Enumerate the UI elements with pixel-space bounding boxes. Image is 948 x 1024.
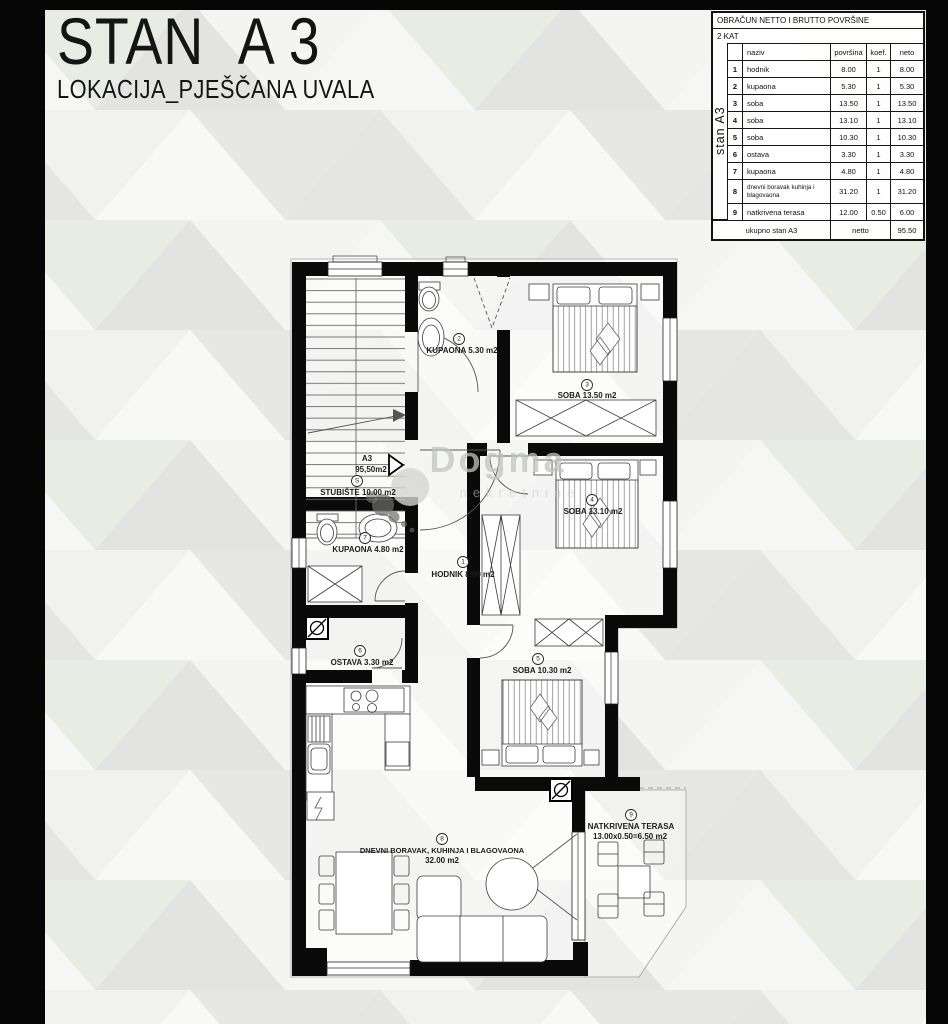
row-num: 2 xyxy=(727,77,742,94)
watermark-text-2: nekretnine xyxy=(460,485,581,500)
row-num: 4 xyxy=(727,111,742,128)
row-povrsina: 8.00 xyxy=(830,60,866,77)
svg-text:1: 1 xyxy=(461,559,465,566)
closet-hodnik xyxy=(482,515,520,615)
colhdr-blank xyxy=(727,43,742,60)
row-povrsina: 10.30 xyxy=(830,128,866,145)
row-neto: 13.10 xyxy=(890,111,923,128)
right-black-margin xyxy=(926,0,948,1024)
svg-text:3: 3 xyxy=(585,382,589,389)
watermark-bird-icon xyxy=(391,468,429,506)
row-povrsina: 4.80 xyxy=(830,162,866,179)
wardrobe-soba5 xyxy=(535,619,603,646)
row-koef: 1 xyxy=(866,145,890,162)
boiler xyxy=(307,792,334,820)
row-naziv: soba xyxy=(742,94,830,111)
shaft-symbol-1 xyxy=(306,617,328,639)
svg-text:13.00x0.50=6.50 m2: 13.00x0.50=6.50 m2 xyxy=(593,832,668,841)
svg-text:A3: A3 xyxy=(362,454,373,463)
row-neto: 3.30 xyxy=(890,145,923,162)
svg-text:32.00 m2: 32.00 m2 xyxy=(425,856,459,865)
colhdr-povrsina: površina xyxy=(830,43,866,60)
colhdr-neto: neto xyxy=(890,43,923,60)
row-koef: 0.50 xyxy=(866,203,890,220)
page-title: STAN A 3 xyxy=(57,10,375,73)
row-num: 9 xyxy=(727,203,742,220)
row-koef: 1 xyxy=(866,128,890,145)
watermark-text: Dogma xyxy=(429,439,566,480)
colhdr-koef: koef. xyxy=(866,43,890,60)
svg-text:HODNIK 8.00 m2: HODNIK 8.00 m2 xyxy=(431,570,495,579)
row-povrsina: 31.20 xyxy=(830,179,866,203)
table-footer-label: ukupno stan A3 xyxy=(713,220,830,239)
toilet-kupaona2 xyxy=(419,282,440,311)
svg-text:KUPAONA 5.30 m2: KUPAONA 5.30 m2 xyxy=(426,346,498,355)
svg-text:5: 5 xyxy=(536,656,540,663)
row-neto: 8.00 xyxy=(890,60,923,77)
svg-text:95,50m2: 95,50m2 xyxy=(355,465,387,474)
row-num: 6 xyxy=(727,145,742,162)
row-naziv: kupaona xyxy=(742,77,830,94)
svg-text:4: 4 xyxy=(590,497,594,504)
svg-text:DNEVNI BORAVAK, KUHINJA I BLAG: DNEVNI BORAVAK, KUHINJA I BLAGOVAONA xyxy=(360,846,525,855)
row-koef: 1 xyxy=(866,179,890,203)
row-num: 8 xyxy=(727,179,742,203)
shower-kupaona7 xyxy=(308,566,362,602)
row-neto: 4.80 xyxy=(890,162,923,179)
svg-text:SOBA 13.50 m2: SOBA 13.50 m2 xyxy=(558,391,617,400)
row-neto: 31.20 xyxy=(890,179,923,203)
svg-text:9: 9 xyxy=(629,812,633,819)
row-naziv: soba xyxy=(742,111,830,128)
svg-text:OSTAVA 3.30 m2: OSTAVA 3.30 m2 xyxy=(331,658,394,667)
shaft-symbol-2 xyxy=(550,779,572,801)
row-naziv: natkrivena terasa xyxy=(742,203,830,220)
row-naziv: dnevni boravak kuhinja i blagovaona xyxy=(742,179,830,203)
row-num: 1 xyxy=(727,60,742,77)
colhdr-naziv: naziv xyxy=(742,43,830,60)
svg-text:SOBA 10.30 m2: SOBA 10.30 m2 xyxy=(513,666,572,675)
svg-text:KUPAONA 4.80 m2: KUPAONA 4.80 m2 xyxy=(332,545,404,554)
round-table xyxy=(486,858,538,910)
table-header: OBRAČUN NETTO I BRUTTO POVRŠINE xyxy=(713,13,923,28)
svg-text:8: 8 xyxy=(440,836,444,843)
row-koef: 1 xyxy=(866,60,890,77)
row-neto: 13.50 xyxy=(890,94,923,111)
row-povrsina: 3.30 xyxy=(830,145,866,162)
row-koef: 1 xyxy=(866,162,890,179)
table-footer-netto: netto xyxy=(830,220,890,239)
title-left: STAN xyxy=(57,10,204,73)
svg-text:7: 7 xyxy=(363,535,367,542)
row-neto: 5.30 xyxy=(890,77,923,94)
title-block: STAN A 3 LOKACIJA_PJEŠČANA UVALA xyxy=(57,10,375,105)
area-table: OBRAČUN NETTO I BRUTTO POVRŠINE 2 KAT st… xyxy=(711,11,925,241)
row-num: 3 xyxy=(727,94,742,111)
svg-text:6: 6 xyxy=(358,648,362,655)
left-black-margin xyxy=(0,0,45,1024)
svg-text:S: S xyxy=(355,478,360,485)
row-povrsina: 12.00 xyxy=(830,203,866,220)
wardrobe-soba3 xyxy=(516,400,656,436)
row-povrsina: 13.10 xyxy=(830,111,866,128)
svg-text:STUBIŠTE 10.00 m2: STUBIŠTE 10.00 m2 xyxy=(320,488,396,497)
row-koef: 1 xyxy=(866,94,890,111)
row-num: 7 xyxy=(727,162,742,179)
row-naziv: hodnik xyxy=(742,60,830,77)
table-subheader: 2 KAT xyxy=(713,28,923,43)
row-naziv: ostava xyxy=(742,145,830,162)
row-num: 5 xyxy=(727,128,742,145)
svg-text:NATKRIVENA TERASA: NATKRIVENA TERASA xyxy=(588,822,675,831)
row-povrsina: 13.50 xyxy=(830,94,866,111)
toilet-kupaona7 xyxy=(317,514,338,545)
row-koef: 1 xyxy=(866,111,890,128)
table-side-label: stan A3 xyxy=(713,43,727,220)
page: Dogma nekretnine A3 95,50m2 S STUBIŠTE 1… xyxy=(0,0,948,1024)
svg-text:2: 2 xyxy=(457,336,461,343)
row-neto: 10.30 xyxy=(890,128,923,145)
page-subtitle: LOKACIJA_PJEŠČANA UVALA xyxy=(57,74,375,105)
row-povrsina: 5.30 xyxy=(830,77,866,94)
row-naziv: soba xyxy=(742,128,830,145)
svg-text:SOBA 13.10 m2: SOBA 13.10 m2 xyxy=(564,507,623,516)
title-right: A 3 xyxy=(238,10,321,73)
row-neto: 6.00 xyxy=(890,203,923,220)
table-footer-total: 95.50 xyxy=(890,220,923,239)
row-naziv: kupaona xyxy=(742,162,830,179)
row-koef: 1 xyxy=(866,77,890,94)
